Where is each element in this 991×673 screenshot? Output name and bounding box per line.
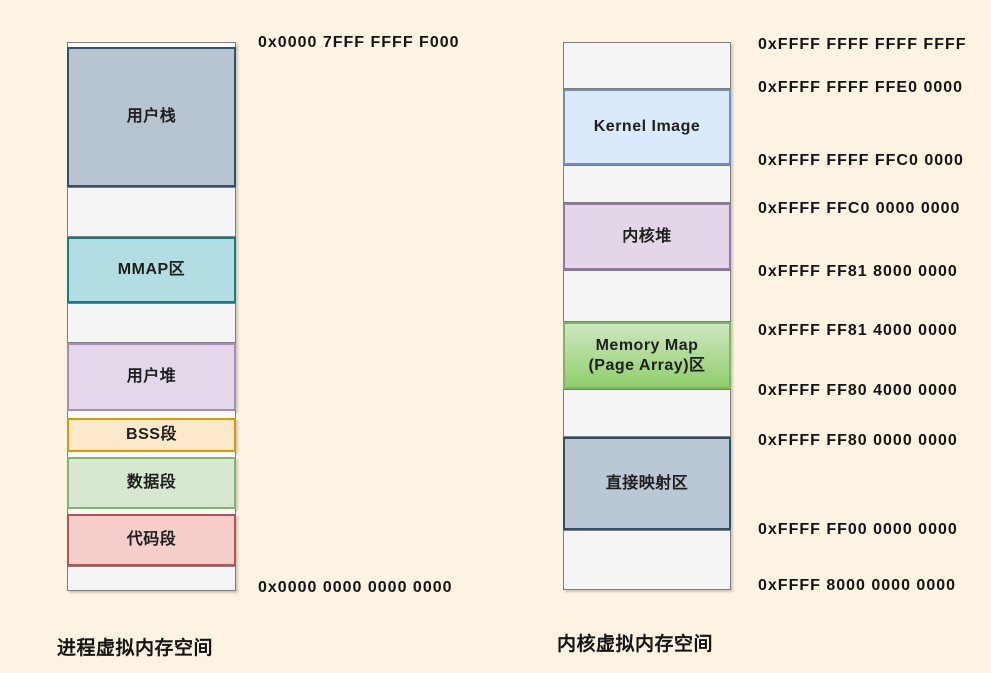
unmapped-gap bbox=[563, 389, 731, 437]
address-label-process-top: 0x0000 7FFF FFFF F000 bbox=[258, 34, 460, 52]
segment-bss: BSS段 bbox=[67, 418, 236, 452]
segment-memory-map-page-array: Memory Map (Page Array)区 bbox=[563, 322, 731, 389]
address-label-kernel-9: 0xFFFF 8000 0000 0000 bbox=[758, 577, 956, 595]
address-label-kernel-2: 0xFFFF FFFF FFC0 0000 bbox=[758, 152, 964, 170]
address-label-kernel-0: 0xFFFF FFFF FFFF FFFF bbox=[758, 36, 967, 54]
unmapped-gap bbox=[67, 566, 236, 591]
segment-label-user-stack: 用户栈 bbox=[127, 107, 177, 127]
segment-mmap-area: MMAP区 bbox=[67, 237, 236, 303]
memory-layout-canvas: 用户栈 MMAP区 用户堆 BSS段 数据段 代码段 0x0000 7FFF F… bbox=[0, 0, 991, 673]
address-label-process-bottom: 0x0000 0000 0000 0000 bbox=[258, 579, 453, 597]
kernel-space-title: 内核虚拟内存空间 bbox=[557, 629, 713, 656]
segment-label-direct-map: 直接映射区 bbox=[606, 474, 689, 494]
segment-kernel-heap: 内核堆 bbox=[563, 203, 731, 270]
unmapped-gap bbox=[563, 165, 731, 203]
unmapped-gap bbox=[563, 42, 731, 89]
unmapped-gap bbox=[67, 411, 236, 418]
segment-data: 数据段 bbox=[67, 457, 236, 509]
address-label-kernel-7: 0xFFFF FF80 0000 0000 bbox=[758, 432, 958, 450]
segment-direct-map: 直接映射区 bbox=[563, 437, 731, 530]
segment-code: 代码段 bbox=[67, 514, 236, 566]
unmapped-gap bbox=[67, 187, 236, 237]
segment-label-kernel-image: Kernel Image bbox=[594, 117, 700, 137]
segment-label-code: 代码段 bbox=[127, 530, 177, 550]
segment-user-stack: 用户栈 bbox=[67, 47, 236, 187]
segment-label-data: 数据段 bbox=[127, 473, 177, 493]
unmapped-gap bbox=[563, 530, 731, 590]
address-label-kernel-5: 0xFFFF FF81 4000 0000 bbox=[758, 322, 958, 340]
address-label-kernel-3: 0xFFFF FFC0 0000 0000 bbox=[758, 200, 960, 218]
segment-label-bss: BSS段 bbox=[126, 425, 177, 445]
address-label-kernel-4: 0xFFFF FF81 8000 0000 bbox=[758, 263, 958, 281]
unmapped-gap bbox=[563, 270, 731, 322]
segment-label-memory-map-page-array: Memory Map (Page Array)区 bbox=[588, 336, 705, 376]
segment-user-heap: 用户堆 bbox=[67, 343, 236, 411]
segment-label-kernel-heap: 内核堆 bbox=[622, 227, 672, 247]
address-label-kernel-6: 0xFFFF FF80 4000 0000 bbox=[758, 382, 958, 400]
address-label-kernel-8: 0xFFFF FF00 0000 0000 bbox=[758, 521, 958, 539]
process-space-title: 进程虚拟内存空间 bbox=[57, 633, 213, 660]
unmapped-gap bbox=[67, 303, 236, 343]
segment-label-user-heap: 用户堆 bbox=[127, 367, 177, 387]
address-label-kernel-1: 0xFFFF FFFF FFE0 0000 bbox=[758, 79, 963, 97]
segment-kernel-image: Kernel Image bbox=[563, 89, 731, 165]
segment-label-mmap-area: MMAP区 bbox=[118, 260, 185, 280]
